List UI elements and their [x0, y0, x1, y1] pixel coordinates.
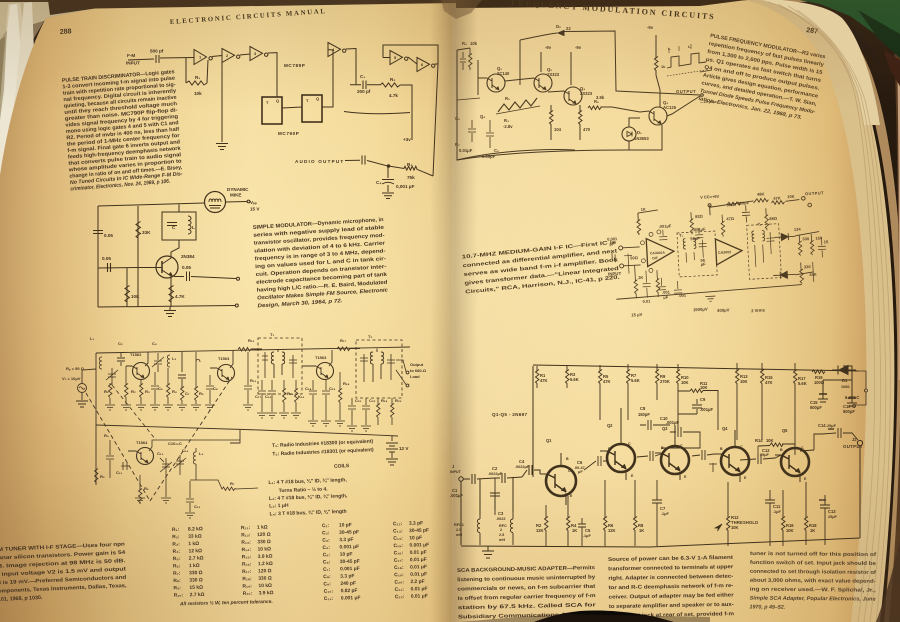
svg-text:330: 330: [804, 264, 812, 269]
svg-text:C₂₀:: C₂₀:: [394, 579, 404, 585]
svg-text:R₅: R₅: [199, 391, 204, 396]
svg-text:C9: C9: [700, 397, 706, 402]
svg-text:Q1: Q1: [546, 438, 552, 443]
svg-text:2.2 pF: 2.2 pF: [410, 579, 424, 585]
svg-text:0.001 μF: 0.001 μF: [409, 542, 429, 549]
svg-text:R₄: R₄: [462, 41, 467, 46]
svg-text:T₂: T₂: [758, 222, 763, 227]
svg-text:Load: Load: [410, 374, 420, 379]
svg-text:30-45 pF: 30-45 pF: [339, 529, 359, 536]
svg-text:1N3653: 1N3653: [634, 136, 649, 141]
svg-text:C₁₃: C₁₃: [194, 504, 201, 509]
svg-text:.0022μF: .0022μF: [515, 465, 530, 469]
svg-text:4.7K: 4.7K: [175, 294, 185, 299]
svg-text:R₃: R₃: [504, 118, 509, 123]
svg-text:330: 330: [802, 236, 810, 241]
svg-text:C13: C13: [828, 509, 836, 514]
svg-text:C₁₇:: C₁₇:: [394, 557, 404, 563]
svg-text:2N384: 2N384: [181, 254, 195, 259]
svg-text:about 3,000 ohms, with exact v: about 3,000 ohms, with exact value depen…: [750, 578, 876, 585]
svg-text:tuner is not turned off for th: tuner is not turned off for this positio…: [750, 551, 876, 558]
svg-text:330 Ω: 330 Ω: [258, 576, 272, 582]
svg-text:.001μF: .001μF: [658, 223, 671, 229]
svg-text:.001μF: .001μF: [450, 493, 463, 498]
svg-text:T1563: T1563: [218, 356, 230, 361]
svg-text:1N92: 1N92: [841, 385, 850, 389]
svg-text:C₇:: C₇:: [323, 567, 331, 573]
svg-text:C2: C2: [492, 466, 498, 471]
svg-text:R₆:: R₆:: [173, 563, 181, 569]
svg-text:C₁₄: C₁₄: [182, 448, 189, 453]
svg-text:ing on receiver used.—W. F.: ing on receiver used.—W. F. Splichal, Jr…: [750, 587, 877, 594]
svg-text:C₁: C₁: [360, 74, 365, 79]
svg-text:5.6K: 5.6K: [631, 378, 640, 383]
svg-text:C₄:: C₄:: [322, 545, 330, 551]
svg-text:C₁₆:: C₁₆:: [394, 550, 404, 556]
svg-text:R₆: R₆: [144, 486, 149, 491]
svg-text:150pF: 150pF: [638, 412, 650, 417]
svg-text:0.01 μF: 0.01 μF: [411, 586, 428, 592]
svg-text:.001μF: .001μF: [666, 420, 679, 425]
svg-text:C: C: [801, 446, 804, 450]
svg-text:OUTPUT: OUTPUT: [805, 190, 824, 196]
svg-text:.0022: .0022: [496, 517, 506, 521]
svg-text:47K: 47K: [603, 379, 611, 384]
svg-text:R₂: R₂: [131, 389, 136, 394]
svg-text:.0022μF: .0022μF: [488, 472, 503, 476]
svg-text:R₂: R₂: [390, 77, 395, 82]
svg-text:150: 150: [815, 235, 823, 240]
svg-text:C₈: C₈: [213, 386, 218, 391]
svg-text:B: B: [780, 448, 783, 452]
svg-text:3.3 pF: 3.3 pF: [340, 573, 354, 579]
svg-text:C₄: C₄: [152, 341, 157, 346]
svg-text:Q: Q: [316, 96, 319, 101]
svg-text:R₁₀:: R₁₀:: [174, 592, 184, 598]
svg-text:33K: 33K: [142, 230, 151, 235]
svg-text:C₂₁:: C₂₁:: [395, 587, 405, 593]
svg-text:t₂: t₂: [688, 45, 691, 49]
svg-text:56μF: 56μF: [690, 236, 700, 242]
svg-text:10K: 10K: [740, 379, 748, 384]
svg-text:μF: μF: [663, 295, 669, 300]
svg-text:0.01: 0.01: [642, 298, 651, 303]
svg-text:R₁₉:: R₁₉:: [242, 583, 252, 589]
svg-text:10K: 10K: [731, 525, 739, 530]
svg-text:Q: Q: [276, 98, 279, 103]
svg-text:C₁:: C₁:: [322, 523, 330, 529]
svg-text:R₁₉: R₁₉: [381, 398, 388, 403]
svg-text:240 pF: 240 pF: [340, 581, 356, 587]
svg-text:R₇: R₇: [455, 142, 460, 147]
svg-text:12K: 12K: [536, 528, 544, 533]
svg-text:R₃: R₃: [145, 389, 150, 394]
svg-text:C₁₇: C₁₇: [255, 394, 262, 399]
svg-text:C: C: [680, 444, 683, 448]
svg-text:50Ω: 50Ω: [630, 255, 639, 260]
svg-text:C₁₂:: C₁₂:: [393, 521, 403, 527]
svg-text:330 Ω: 330 Ω: [257, 539, 271, 545]
svg-text:10K: 10K: [131, 294, 140, 299]
svg-text:C₅: C₅: [455, 116, 460, 121]
svg-text:Output: Output: [410, 362, 424, 367]
svg-text:47K: 47K: [765, 380, 773, 385]
svg-text:C₁₁: C₁₁: [116, 470, 123, 475]
svg-text:R₂₀:: R₂₀:: [243, 591, 253, 597]
svg-text:C₂: C₂: [494, 148, 499, 153]
svg-text:3.9 kΩ: 3.9 kΩ: [258, 554, 273, 560]
svg-text:R₄:: R₄:: [172, 549, 180, 555]
svg-text:D₁: D₁: [637, 130, 642, 135]
svg-text:to 680-Ω: to 680-Ω: [410, 368, 427, 373]
svg-text:12K: 12K: [608, 528, 616, 533]
svg-text:R₁₄:: R₁₄:: [241, 547, 251, 553]
svg-text:1.2 kΩ: 1.2 kΩ: [258, 561, 273, 567]
svg-text:C5: C5: [585, 528, 591, 533]
svg-text:R₅: R₅: [100, 474, 105, 479]
svg-text:OUTPUT: OUTPUT: [676, 89, 696, 94]
svg-text:C: C: [568, 469, 571, 473]
svg-text:mH: mH: [456, 533, 462, 537]
svg-text:CA3001A: CA3001A: [650, 251, 666, 256]
svg-text:R₄: R₄: [172, 389, 177, 394]
svg-text:0.01 μF: 0.01 μF: [410, 564, 427, 570]
svg-text:2: 2: [500, 528, 502, 532]
svg-text:R14: R14: [755, 438, 763, 443]
svg-text:8.2 kΩ: 8.2 kΩ: [188, 526, 203, 532]
svg-text:3.9 kΩ: 3.9 kΩ: [259, 590, 274, 596]
svg-text:2S323: 2S323: [580, 91, 593, 96]
svg-text:47K: 47K: [540, 378, 548, 383]
svg-text:F-M: F-M: [127, 53, 135, 58]
svg-text:12 V: 12 V: [399, 446, 409, 451]
svg-text:400μV: 400μV: [717, 307, 730, 313]
svg-text:-9v: -9v: [647, 25, 654, 30]
svg-text:mH: mH: [499, 538, 505, 542]
svg-text:0.05: 0.05: [104, 233, 113, 238]
svg-text:-9v: -9v: [545, 45, 552, 50]
svg-text:CA3002: CA3002: [718, 250, 731, 255]
svg-text:T1564: T1564: [136, 440, 148, 445]
svg-text:C3: C3: [498, 511, 504, 516]
svg-text:2 Vrms: 2 Vrms: [751, 307, 766, 313]
svg-text:C8: C8: [640, 406, 646, 411]
svg-text:10 pF: 10 pF: [340, 551, 353, 557]
svg-text:+3v: +3v: [403, 137, 411, 142]
svg-text:500 pf: 500 pf: [150, 49, 164, 54]
svg-text:R₁: R₁: [195, 75, 200, 80]
svg-text:10K: 10K: [786, 528, 794, 533]
svg-text:1K: 1K: [572, 528, 577, 533]
svg-text:0.01 μF: 0.01 μF: [410, 550, 427, 556]
svg-text:2.7 kΩ: 2.7 kΩ: [190, 592, 205, 598]
svg-text:R₁₈:: R₁₈:: [242, 576, 252, 582]
svg-text:10 pF: 10 pF: [339, 522, 352, 528]
svg-text:R₄: R₄: [104, 433, 109, 438]
svg-text:0,001 μF: 0,001 μF: [396, 184, 415, 189]
svg-text:10k: 10k: [194, 91, 202, 96]
svg-text:C11: C11: [773, 504, 781, 509]
svg-text:3.3 pF: 3.3 pF: [339, 537, 353, 543]
svg-text:2.7 kΩ: 2.7 kΩ: [189, 555, 204, 561]
svg-text:R₅:: R₅:: [173, 556, 181, 562]
svg-text:3.9k: 3.9k: [596, 95, 605, 100]
svg-text:C₅:: C₅:: [323, 552, 331, 558]
svg-text:330 Ω: 330 Ω: [189, 577, 203, 583]
svg-text:1K: 1K: [641, 207, 646, 212]
svg-text:0.001 μF: 0.001 μF: [341, 595, 361, 602]
svg-text:C10₂₅C: C10₂₅C: [168, 441, 182, 446]
svg-text:68Ω: 68Ω: [769, 216, 778, 221]
svg-text:15 kΩ: 15 kΩ: [189, 585, 203, 591]
svg-text:C₂₂:: C₂₂:: [395, 594, 405, 600]
svg-text:33 kΩ: 33 kΩ: [188, 534, 202, 540]
svg-text:10K: 10K: [700, 385, 708, 390]
svg-text:AUDIO OUTPUT: AUDIO OUTPUT: [295, 159, 344, 164]
svg-text:0.01 μF: 0.01 μF: [410, 557, 427, 563]
svg-text:R₂₀: R₂₀: [395, 398, 402, 403]
svg-text:Simple SCA Adapter, Popular El: Simple SCA Adapter, Popular Electronics,…: [750, 595, 876, 602]
svg-text:μF: μF: [578, 470, 583, 474]
svg-text:D₂: D₂: [556, 24, 561, 29]
svg-text:MC790P: MC790P: [278, 131, 299, 136]
svg-text:C: C: [628, 442, 631, 446]
svg-text:10K: 10K: [787, 194, 795, 199]
svg-text:C₁₈: C₁₈: [305, 386, 312, 391]
svg-text:R₂:: R₂:: [172, 534, 180, 540]
svg-text:R₁₈: R₁₈: [343, 381, 350, 386]
svg-text:30-45 pF: 30-45 pF: [340, 559, 360, 566]
svg-text:5.6K: 5.6K: [798, 381, 807, 386]
svg-text:0.001 μF: 0.001 μF: [339, 544, 359, 551]
svg-text:C₂₂: C₂₂: [369, 398, 376, 403]
svg-text:L₁: L₁: [90, 336, 94, 341]
svg-text:288: 288: [60, 28, 72, 36]
svg-text:T1562: T1562: [130, 352, 142, 357]
svg-text:C₃:: C₃:: [322, 537, 330, 543]
svg-text:48K: 48K: [757, 191, 765, 196]
svg-text:B: B: [661, 446, 664, 450]
svg-text:INPUT: INPUT: [450, 470, 462, 474]
svg-text:COILS: COILS: [334, 463, 350, 470]
svg-text:1970, p 49–52.: 1970, p 49–52.: [750, 604, 786, 610]
svg-text:0.05: 0.05: [102, 256, 111, 261]
svg-text:R₁₅:: R₁₅:: [242, 554, 252, 560]
svg-text:.1μF: .1μF: [773, 510, 781, 514]
svg-text:1 kΩ: 1 kΩ: [257, 524, 268, 530]
svg-text:.001μF: .001μF: [693, 226, 706, 232]
svg-text:75k: 75k: [407, 175, 415, 180]
svg-text:330μF: 330μF: [737, 200, 749, 206]
svg-text:MC789P: MC789P: [284, 63, 305, 68]
svg-text:330 Ω: 330 Ω: [189, 570, 203, 576]
svg-text:C: C: [740, 445, 743, 449]
svg-text:47K: 47K: [773, 196, 781, 201]
svg-text:R₁₇:: R₁₇:: [242, 569, 252, 575]
svg-text:200 pf: 200 pf: [357, 89, 371, 94]
svg-text:3.3 pF: 3.3 pF: [409, 520, 423, 526]
svg-text:C₁₃:: C₁₃:: [393, 528, 403, 534]
svg-text:Q4: Q4: [722, 426, 728, 431]
svg-text:.1μF: .1μF: [583, 534, 591, 538]
svg-text:R₁₄: R₁₄: [287, 391, 294, 396]
svg-text:10 kΩ: 10 kΩ: [257, 546, 271, 552]
svg-text:OUTPUT: OUTPUT: [843, 444, 863, 449]
svg-text:C₁₁:: C₁₁:: [324, 596, 334, 602]
svg-text:R₁₆:: R₁₆:: [242, 561, 252, 567]
svg-text:C₁₉:: C₁₉:: [394, 572, 404, 578]
svg-text:1K: 1K: [639, 528, 644, 533]
svg-text:47Ω: 47Ω: [726, 216, 735, 221]
svg-text:1K: 1K: [810, 528, 815, 533]
svg-text:μF: μF: [609, 241, 615, 246]
svg-text:Q5: Q5: [782, 428, 788, 433]
svg-text:10k: 10k: [470, 41, 478, 46]
svg-text:V₁ = 10μV: V₁ = 10μV: [62, 376, 81, 381]
svg-text:T₂: T₂: [368, 334, 372, 339]
svg-text:L₃: 1 μH: L₃: 1 μH: [269, 503, 289, 510]
svg-text:2S323: 2S323: [547, 72, 560, 77]
svg-text:L: L: [192, 225, 195, 230]
svg-text:C₄: C₄: [376, 180, 382, 185]
svg-text:R₁₃: R₁₃: [250, 378, 257, 383]
svg-text:C₂:: C₂:: [322, 530, 330, 536]
svg-text:50Ω: 50Ω: [726, 202, 735, 207]
svg-text:6.3VAC: 6.3VAC: [845, 395, 859, 400]
svg-text:30-45 pF: 30-45 pF: [409, 528, 429, 535]
svg-text:C₇: C₇: [185, 391, 190, 396]
svg-text:.1μF: .1μF: [661, 512, 669, 516]
svg-text:V CC=+9V: V CC=+9V: [700, 194, 720, 200]
svg-text:R₁: R₁: [104, 389, 109, 394]
svg-text:R₇:: R₇:: [173, 571, 181, 577]
svg-text:C₈:: C₈:: [323, 574, 331, 580]
svg-text:RFC1: RFC1: [454, 523, 464, 527]
svg-text:45K: 45K: [809, 272, 817, 277]
svg-text:1 kΩ: 1 kΩ: [189, 563, 200, 569]
svg-text:INPUT: INPUT: [126, 61, 140, 66]
svg-text:-9v: -9v: [575, 45, 582, 50]
svg-text:.001μF: .001μF: [700, 407, 713, 412]
svg-text:470: 470: [583, 127, 591, 132]
svg-text:R₁₃:: R₁₃:: [241, 540, 251, 546]
svg-text:R₁:: R₁:: [172, 527, 180, 533]
svg-text:500μF: 500μF: [843, 409, 855, 414]
svg-text:0.01 μF: 0.01 μF: [410, 571, 427, 577]
svg-text:1500μV: 1500μV: [693, 306, 708, 312]
svg-text:C₁₅:: C₁₅:: [393, 543, 403, 549]
svg-text:R₁₁:: R₁₁:: [241, 525, 251, 531]
svg-text:C₂: C₂: [118, 341, 123, 346]
svg-text:C6: C6: [577, 460, 583, 465]
svg-text:0.001 μF: 0.001 μF: [340, 566, 360, 573]
svg-text:1 kΩ: 1 kΩ: [188, 541, 199, 547]
svg-text:10K: 10K: [766, 438, 774, 443]
svg-text:C₆:: C₆:: [323, 559, 331, 565]
svg-text:R₅: R₅: [505, 96, 510, 101]
svg-text:-2.8v: -2.8v: [503, 124, 513, 129]
svg-text:INPUT: INPUT: [608, 271, 622, 277]
svg-text:—15 μsec: —15 μsec: [700, 100, 717, 104]
svg-text:2.5: 2.5: [499, 533, 504, 537]
svg-text:270K: 270K: [660, 379, 670, 384]
svg-text:K₁₆: K₁₆: [298, 394, 305, 399]
svg-text:134: 134: [794, 226, 802, 231]
svg-text:C₁₃: C₁₃: [157, 451, 164, 456]
svg-text:C14: C14: [818, 423, 826, 428]
svg-text:D1: D1: [842, 378, 848, 383]
svg-text:0.01μF: 0.01μF: [459, 148, 473, 153]
svg-text:5.6K: 5.6K: [570, 377, 579, 382]
svg-text:connected to set through isola: connected to set through isolation resis…: [750, 569, 876, 576]
svg-text:J2: J2: [852, 437, 857, 442]
svg-text:μF: μF: [701, 262, 707, 267]
svg-text:R₉:: R₉:: [173, 585, 181, 591]
svg-text:12 kΩ: 12 kΩ: [188, 548, 202, 554]
svg-text:C₉:: C₉:: [323, 581, 331, 587]
svg-text:10 kΩ: 10 kΩ: [258, 583, 272, 589]
svg-text:T₁: T₁: [270, 332, 274, 337]
svg-text:R₁₂: R₁₂: [248, 338, 255, 343]
svg-text:Rₚ = 50 Ω: Rₚ = 50 Ω: [66, 366, 85, 371]
svg-text:DYNAMIC: DYNAMIC: [227, 187, 249, 192]
svg-text:120 Ω: 120 Ω: [257, 532, 271, 538]
svg-text:25μF: 25μF: [760, 453, 770, 457]
svg-text:C₁₀:: C₁₀:: [324, 588, 334, 594]
svg-text:10 pF: 10 pF: [409, 535, 422, 541]
svg-text:10K: 10K: [681, 380, 689, 385]
svg-text:C4: C4: [519, 459, 525, 464]
svg-text:.25μF: .25μF: [826, 424, 837, 428]
svg-text:2.5: 2.5: [456, 528, 461, 532]
svg-text:0.82 pF: 0.82 pF: [341, 588, 358, 594]
svg-text:R₁₇: R₁₇: [340, 338, 347, 343]
svg-text:R₇: R₇: [230, 481, 235, 486]
svg-text:C₂₁: C₂₁: [355, 398, 362, 403]
svg-text:0.05: 0.05: [182, 265, 191, 270]
svg-text:Q1-Q5 - 2N697: Q1-Q5 - 2N697: [492, 412, 527, 417]
svg-text:Q3: Q3: [662, 426, 668, 431]
svg-text:0.05μF: 0.05μF: [482, 154, 496, 159]
svg-text:4.7k: 4.7k: [389, 93, 398, 98]
svg-text:22: 22: [566, 26, 571, 31]
svg-text:L₄: L₄: [199, 451, 203, 456]
svg-text:.001: .001: [678, 293, 687, 298]
svg-text:C7: C7: [660, 506, 666, 511]
svg-text:AC125: AC125: [663, 105, 677, 110]
svg-text:B: B: [566, 457, 569, 461]
svg-text:120 Ω: 120 Ω: [258, 568, 272, 574]
svg-text:MIKE: MIKE: [230, 193, 241, 198]
svg-text:500μF: 500μF: [810, 405, 822, 410]
svg-text:L₂: L₂: [172, 356, 176, 361]
svg-text:B: B: [720, 447, 723, 451]
svg-text:R₃: R₃: [407, 162, 412, 167]
svg-text:function switch of set. Input: function switch of set. Input jack shoul…: [750, 560, 876, 567]
svg-text:R₈:: R₈:: [173, 578, 181, 584]
svg-text:2K: 2K: [638, 275, 643, 280]
svg-text:Q₄: Q₄: [480, 114, 485, 119]
svg-text:82Ω: 82Ω: [695, 214, 704, 219]
svg-text:R₁₂:: R₁₂:: [241, 532, 251, 538]
svg-text:104: 104: [554, 127, 562, 132]
svg-text:15 V: 15 V: [250, 207, 260, 212]
svg-text:C₁₈:: C₁₈:: [394, 565, 404, 571]
svg-text:C₁₉: C₁₉: [329, 386, 336, 391]
svg-text:C₁₄:: C₁₄:: [393, 536, 403, 542]
svg-text:15 μV: 15 μV: [631, 312, 643, 318]
svg-text:B: B: [608, 447, 611, 451]
